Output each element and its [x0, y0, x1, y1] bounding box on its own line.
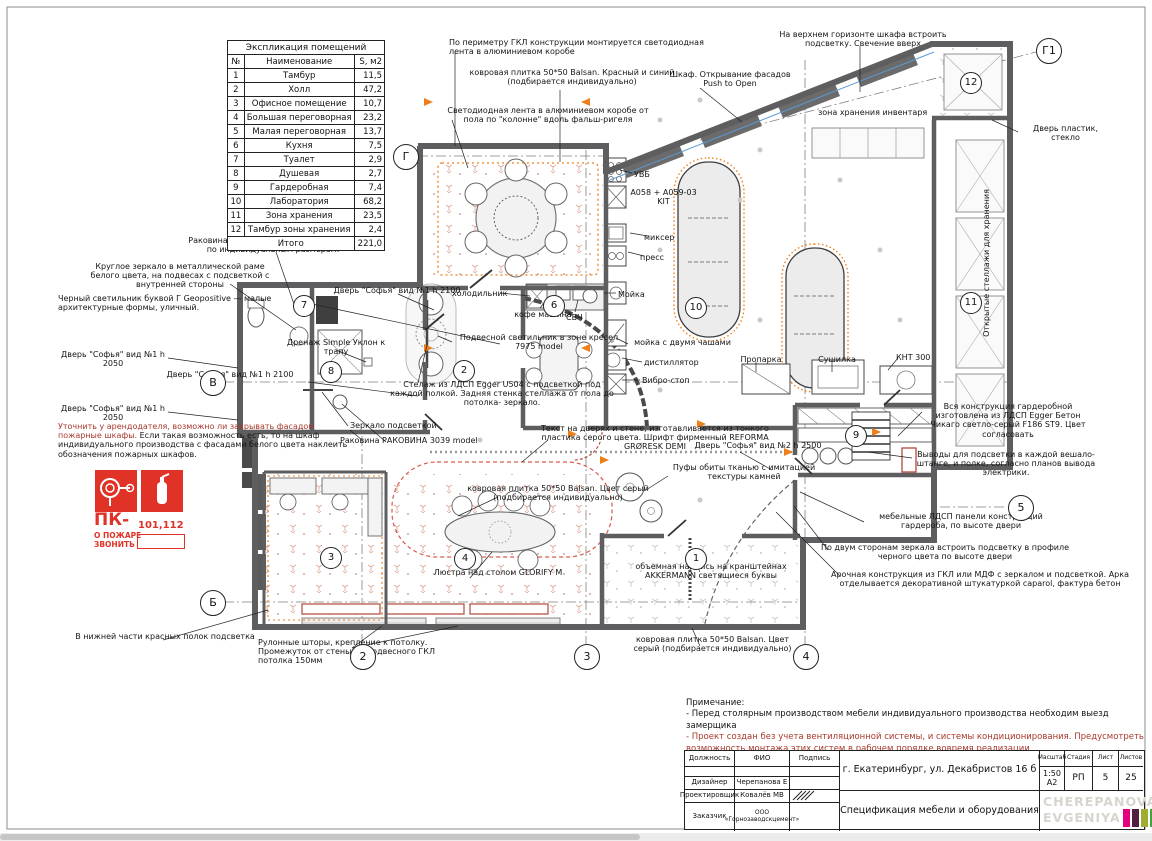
legend-row: 12 Тамбур зоны хранения 2,4	[228, 223, 385, 237]
legend-room-name: Тамбур	[244, 69, 354, 83]
titleblock-name-designer: Черепанова Е	[735, 777, 790, 790]
signature-squiggle	[790, 790, 820, 801]
legend-col-num: №	[228, 55, 245, 69]
titleblock-sheet-value: 5	[1093, 767, 1119, 791]
annotation-wardrobe-egger: Вся конструкция гардеробной изготовлена …	[924, 402, 1092, 439]
legend-room-number: 10	[228, 195, 245, 209]
legend-col-name: Наименование	[244, 55, 354, 69]
annotation-cabinet-uplight: На верхнем горизонте шкафа встроить подс…	[758, 30, 968, 48]
axis-marker-g: Г	[393, 144, 419, 170]
legend-row: 4 Большая переговорная 23,2	[228, 111, 385, 125]
legend-row: 2 Холл 47,2	[228, 83, 385, 97]
annotation-inventory-zone: зона хранения инвентаря	[818, 108, 968, 117]
legend-room-name: Туалет	[244, 153, 354, 167]
annotation-door-sofia-2: Дверь "Софья" вид №1 h 2100	[150, 370, 310, 379]
room-tag-12: 12	[960, 72, 982, 94]
legend-row: 6 Кухня 7,5	[228, 139, 385, 153]
legend-room-name: Кухня	[244, 139, 354, 153]
annotation-poufs: Пуфы обиты тканью с имитацией текстуры к…	[664, 463, 824, 481]
annotation-vibro-stop: Вибро-стоп	[642, 376, 727, 385]
legend-room-number: 11	[228, 209, 245, 223]
annotation-kit-a058: A058 + A059-03 KIT	[626, 188, 701, 206]
annotation-dryer: Сушилка	[808, 355, 866, 364]
fire-sign-code: ПК-	[94, 510, 129, 530]
annotation-ldsp-panels: мебельные ЛДСП панели конструкций гардер…	[856, 512, 1066, 530]
fire-hydrant-sign: ПК- 101,112 О ПОЖАРЕ ЗВОНИТЬ	[90, 466, 190, 558]
annotation-fire-cabinet-note: Уточнить у арендодателя, возможно ли зак…	[58, 422, 350, 459]
annotation-fridge: холодильник	[452, 289, 537, 298]
titleblock-scale-2: А2	[1047, 779, 1058, 788]
room-tag-2: 2	[453, 360, 475, 382]
fire-hose-icon	[95, 470, 137, 512]
room-tag-6: 6	[543, 295, 565, 317]
legend-room-area: 23,5	[354, 209, 384, 223]
legend-room-number: 9	[228, 181, 245, 195]
titleblock-sign-client	[790, 803, 840, 831]
room-tag-9: 9	[845, 425, 867, 447]
horizontal-scrollbar-thumb[interactable]	[0, 834, 640, 840]
titleblock-name-engineer: Ковалёв МВ	[735, 790, 790, 803]
legend-room-area: 2,9	[354, 153, 384, 167]
legend-row: 5 Малая переговорная 13,7	[228, 125, 385, 139]
axis-marker-4: 4	[793, 644, 819, 670]
annotation-mixer: миксер	[644, 233, 699, 242]
annotation-door-sofia-5: Дверь "Софья" вид №2 h 2500	[688, 441, 828, 450]
room-tag-4: 4	[454, 548, 476, 570]
room-tag-10: 10	[685, 297, 707, 319]
annotation-door-sofia-1: Дверь "Софья" вид №1 h 2050	[58, 350, 168, 368]
titleblock-col-role: Должность	[685, 751, 735, 767]
annotation-press: пресс	[640, 253, 690, 262]
legend-col-area: S, м2	[354, 55, 384, 69]
titleblock-sheets-label: Листов	[1119, 751, 1143, 767]
annotation-led-perimeter: По периметру ГКЛ конструкции монтируется…	[449, 38, 707, 56]
annotation-arch: Арочная конструкция из ГКЛ или МДФ с зер…	[830, 570, 1130, 588]
notes-title: Примечание:	[686, 698, 1148, 709]
legend-room-area: 7,4	[354, 181, 384, 195]
logo-color-bar	[1123, 809, 1130, 827]
legend-row: 8 Душевая 2,7	[228, 167, 385, 181]
axis-marker-3: 3	[574, 644, 600, 670]
titleblock-role-designer: Дизайнер	[685, 777, 735, 790]
titleblock-sheet-label: Лист	[1093, 751, 1119, 767]
annotation-open-racks: Открытые стеллажи для хранения	[982, 178, 991, 348]
legend-room-number: 4	[228, 111, 245, 125]
legend-room-area: 11,5	[354, 69, 384, 83]
titleblock-stage-value: РП	[1065, 767, 1093, 791]
legend-room-area: 2,4	[354, 223, 384, 237]
legend-room-area: 2,7	[354, 167, 384, 181]
legend-room-number: 7	[228, 153, 245, 167]
titleblock-sign-designer	[790, 777, 840, 790]
logo-color-bars	[1122, 809, 1152, 827]
annotation-distiller: дистиллятор	[644, 358, 734, 367]
titleblock-sign-engineer	[790, 790, 840, 803]
legend-room-area: 7,5	[354, 139, 384, 153]
axis-marker-5: 5	[1008, 495, 1034, 521]
legend-room-number: 2	[228, 83, 245, 97]
titleblock-scale-value: 1:50 А2	[1040, 767, 1065, 791]
room-tag-11: 11	[960, 292, 982, 314]
logo-color-bar	[1141, 809, 1148, 827]
annotation-steamer: Пропарка	[730, 355, 792, 364]
legend-row: 1 Тамбур 11,5	[228, 69, 385, 83]
annotation-mirror-side-light: По двум сторонам зеркала встроить подсве…	[820, 543, 1070, 561]
horizontal-scrollbar[interactable]	[0, 833, 1152, 841]
room-tag-8: 8	[320, 361, 342, 383]
annotation-plastic-glass-door: Дверь пластик, стекло	[1018, 124, 1113, 142]
annotation-mirror-light: Зеркало подсветкой	[350, 421, 470, 430]
annotation-push-to-open: Шкаф. Открывание фасадов Push to Open	[660, 70, 800, 88]
legend-room-area: 13,7	[354, 125, 384, 139]
annotation-knt300: КНТ 300	[896, 353, 958, 362]
legend-room-name: Душевая	[244, 167, 354, 181]
legend-room-name: Гардеробная	[244, 181, 354, 195]
titleblock-sheets-value: 25	[1119, 767, 1143, 791]
annotation-led-column: Светодиодная лента в алюминиевом коробе …	[446, 106, 650, 124]
legend-row: 10 Лаборатория 68,2	[228, 195, 385, 209]
notes-line1: - Перед столярным производством мебели и…	[686, 709, 1148, 732]
legend-room-name: Тамбур зоны хранения	[244, 223, 354, 237]
legend-total-label: Итого	[228, 237, 355, 251]
legend-total-value: 221,0	[354, 237, 384, 251]
annotation-carpet-gray-1: ковровая плитка 50*50 Balsan. Цвет серый…	[464, 484, 652, 502]
legend-room-name: Малая переговорная	[244, 125, 354, 139]
annotation-pendant-light: Подвесной светильник в зоне кресел 7975 …	[450, 333, 628, 351]
annotation-coffee-machine: кофе машина	[512, 310, 574, 319]
legend-row: 9 Гардеробная 7,4	[228, 181, 385, 195]
legend-room-number: 8	[228, 167, 245, 181]
titleblock-blank-sign	[790, 767, 840, 777]
legend-room-name: Офисное помещение	[244, 97, 354, 111]
titleblock-col-fio: ФИО	[735, 751, 790, 767]
drawing-sheet: Экспликация помещений № Наименование S, …	[0, 0, 1152, 841]
room-tag-7: 7	[293, 295, 315, 317]
legend-row: 3 Офисное помещение 10,7	[228, 97, 385, 111]
legend-room-name: Большая переговорная	[244, 111, 354, 125]
annotation-round-mirror: Круглое зеркало в металлической раме бел…	[84, 262, 276, 290]
legend-room-number: 3	[228, 97, 245, 111]
annotation-sink-3039: Раковина РАКОВИНА 3039 model	[340, 436, 510, 445]
annotation-door-sofia-3: Дверь "Софья" вид №1 h 2050	[58, 404, 168, 422]
title-block: Должность ФИО Подпись Дизайнер Черепанов…	[684, 750, 1145, 830]
titleblock-name-client: ООО «Горнозаводскцемент»	[735, 803, 790, 831]
titleblock-address: г. Екатеринбург, ул. Декабристов 16 б	[840, 751, 1040, 791]
annotation-microwave: СВЧ	[566, 313, 606, 322]
legend-room-number: 1	[228, 69, 245, 83]
axis-marker-b: Б	[200, 590, 226, 616]
legend-room-area: 10,7	[354, 97, 384, 111]
room-tag-3: 3	[320, 547, 342, 569]
fire-sign-line2: ЗВОНИТЬ	[94, 541, 135, 549]
annotation-carpet-red-blue: ковровая плитка 50*50 Balsan. Красный и …	[468, 68, 676, 86]
legend-row: 11 Зона хранения 23,5	[228, 209, 385, 223]
titleblock-scale-label: Масштаб	[1040, 751, 1065, 767]
legend-room-number: 12	[228, 223, 245, 237]
legend-room-area: 68,2	[354, 195, 384, 209]
logo-color-bar	[1132, 809, 1139, 827]
annotation-door-sofia-4: Дверь "Софья" вид №1 h 2100	[332, 286, 462, 295]
legend-room-name: Лаборатория	[244, 195, 354, 209]
annotation-red-shelves-light: В нижней части красных полок подсветка	[70, 632, 260, 641]
titleblock-blank-role	[685, 767, 735, 777]
annotation-shelf-egger: Стелаж из ЛДСП Egger U504 с подсветкой п…	[386, 380, 618, 408]
legend-title: Экспликация помещений	[228, 41, 385, 55]
titleblock-doc-title: Спецификация мебели и оборудования	[840, 791, 1040, 831]
annotation-uvb: УВБ	[634, 170, 679, 179]
titleblock-role-engineer: Проектировщик	[685, 790, 735, 803]
fire-sign-empty-box	[137, 534, 185, 549]
legend-room-name: Холл	[244, 83, 354, 97]
legend-row: 7 Туалет 2,9	[228, 153, 385, 167]
annotation-chandelier: Люстра над столом GLORIFY M	[428, 568, 568, 577]
annotation-drain: Дренаж Simple Уклон к трапу	[276, 338, 396, 356]
fire-extinguisher-icon	[141, 470, 183, 512]
titleblock-col-sign: Подпись	[790, 751, 840, 767]
fire-sign-numbers: 101,112	[138, 520, 184, 531]
axis-marker-g1: Г1	[1036, 38, 1062, 64]
fire-sign-line1: О ПОЖАРЕ	[94, 532, 141, 540]
legend-room-number: 5	[228, 125, 245, 139]
annotation-black-lamp: Черный светильник буквой Г Geopositive —…	[58, 294, 314, 312]
annotation-carpet-gray-2: ковровая плитка 50*50 Balsan. Цвет серый…	[630, 635, 795, 653]
annotation-sink-kitchen: Мойка	[618, 290, 668, 299]
annotation-wardrobe-lighting: Выводы для подсветки в каждой вешало-шта…	[916, 450, 1096, 478]
logo-line2: EVGENIYA	[1043, 811, 1121, 824]
titleblock-blank-fio	[735, 767, 790, 777]
axis-marker-v: В	[200, 370, 226, 396]
titleblock-stage-label: Стадия	[1065, 751, 1093, 767]
logo-line1: CHEREPANOVA	[1043, 795, 1152, 808]
legend-room-number: 6	[228, 139, 245, 153]
notes-block: Примечание: - Перед столярным производст…	[686, 698, 1148, 755]
legend-room-area: 23,2	[354, 111, 384, 125]
legend-room-area: 47,2	[354, 83, 384, 97]
legend-room-name: Зона хранения	[244, 209, 354, 223]
room-legend-table: Экспликация помещений № Наименование S, …	[227, 40, 385, 251]
axis-marker-2: 2	[350, 644, 376, 670]
annotation-double-sink: мойка с двумя чашами	[630, 338, 735, 347]
room-tag-1: 1	[685, 548, 707, 570]
studio-logo: CHEREPANOVA EVGENIYA	[1040, 791, 1143, 831]
annotation-akkermann-sign: объемная надпись на кранштейнах AKKERMAN…	[632, 562, 790, 580]
